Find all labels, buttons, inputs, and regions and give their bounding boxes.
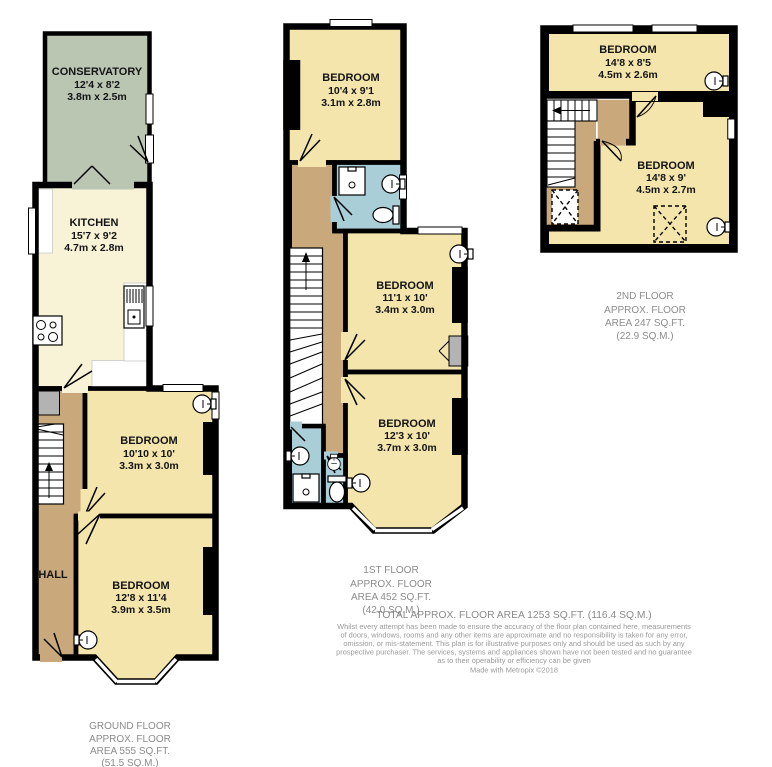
room-dims-m: 3.3m x 3.0m bbox=[119, 460, 179, 472]
room-dims-ft: 14'8 x 8'5 bbox=[605, 57, 651, 69]
toilet-icon bbox=[373, 206, 399, 224]
room-label: BEDROOM bbox=[378, 418, 435, 430]
stairs-icon bbox=[36, 424, 64, 504]
shower-icon bbox=[293, 474, 319, 502]
toilet-icon bbox=[328, 476, 346, 502]
window bbox=[330, 20, 372, 27]
svg-text:AREA 452 SQ.FT.: AREA 452 SQ.FT. bbox=[351, 592, 431, 603]
room-label: KITCHEN bbox=[70, 217, 119, 229]
room-dims-m: 4.5m x 2.7m bbox=[636, 184, 696, 196]
window bbox=[652, 25, 697, 32]
svg-text:APPROX. FLOOR: APPROX. FLOOR bbox=[604, 305, 686, 316]
window bbox=[418, 227, 462, 234]
svg-text:(51.5 SQ.M.): (51.5 SQ.M.) bbox=[101, 758, 158, 767]
svg-text:(22.9 SQ.M.): (22.9 SQ.M.) bbox=[616, 331, 673, 342]
stove-icon bbox=[33, 316, 62, 345]
room-dims-ft: 14'8 x 9' bbox=[646, 172, 686, 184]
room-conservatory bbox=[45, 34, 150, 186]
room-dims-m: 4.7m x 2.8m bbox=[64, 242, 124, 254]
svg-text:2ND FLOOR: 2ND FLOOR bbox=[616, 291, 673, 302]
room-dims-m: 3.4m x 3.0m bbox=[375, 304, 435, 316]
room-label: BEDROOM bbox=[599, 44, 656, 56]
window bbox=[728, 119, 735, 139]
room-dims-ft: 12'8 x 11'4 bbox=[115, 592, 166, 604]
first-floor-plan: BEDROOM 10'4 x 9'1 3.1m x 2.8m BEDROOM 1… bbox=[283, 20, 473, 617]
door-opening bbox=[72, 181, 134, 190]
ground-floor-plan: CONSERVATORY 12'4 x 8'2 3.8m x 2.5m KITC… bbox=[29, 34, 220, 767]
svg-text:AREA 555 SQ.FT.: AREA 555 SQ.FT. bbox=[90, 746, 170, 757]
svg-text:APPROX. FLOOR: APPROX. FLOOR bbox=[350, 579, 432, 590]
floorplan-canvas: CONSERVATORY 12'4 x 8'2 3.8m x 2.5m KITC… bbox=[0, 0, 772, 767]
room-label: BEDROOM bbox=[376, 280, 433, 292]
ground-floor-caption: GROUND FLOOR APPROX. FLOOR AREA 555 SQ.F… bbox=[89, 721, 171, 767]
credit-text: Made with Metropix ©2018 bbox=[470, 666, 558, 675]
room-label: BEDROOM bbox=[322, 72, 379, 84]
disclaimer-line: as to their operability or efficiency ca… bbox=[437, 656, 591, 665]
window bbox=[573, 25, 633, 32]
svg-text:APPROX. FLOOR: APPROX. FLOOR bbox=[89, 734, 171, 745]
second-floor-caption: 2ND FLOOR APPROX. FLOOR AREA 247 SQ.FT. … bbox=[604, 291, 686, 342]
room-dims-ft: 10'4 x 9'1 bbox=[328, 85, 374, 97]
room-dims-ft: 11'1 x 10' bbox=[382, 292, 427, 304]
room-dims-ft: 10'10 x 10' bbox=[123, 448, 175, 460]
kitchen-counter bbox=[92, 361, 150, 387]
first-floor-caption: 1ST FLOOR APPROX. FLOOR AREA 452 SQ.FT. … bbox=[350, 565, 432, 616]
sink-icon bbox=[450, 245, 473, 263]
window bbox=[146, 94, 153, 124]
room-label: BEDROOM bbox=[112, 580, 169, 592]
storage-block bbox=[36, 391, 60, 415]
door-opening bbox=[632, 92, 658, 101]
svg-text:1ST FLOOR: 1ST FLOOR bbox=[363, 565, 418, 576]
second-floor-plan: BEDROOM 14'8 x 8'5 4.5m x 2.6m BEDROOM 1… bbox=[544, 25, 735, 342]
room-dims-m: 4.5m x 2.6m bbox=[598, 69, 658, 81]
floorplan-page: CONSERVATORY 12'4 x 8'2 3.8m x 2.5m KITC… bbox=[0, 0, 772, 767]
svg-text:GROUND FLOOR: GROUND FLOOR bbox=[89, 721, 171, 732]
svg-text:AREA 247 SQ.FT.: AREA 247 SQ.FT. bbox=[605, 318, 685, 329]
window bbox=[29, 208, 36, 254]
room-label: HALL bbox=[38, 569, 68, 581]
window bbox=[146, 286, 153, 326]
room-dims-ft: 12'3 x 10' bbox=[384, 430, 430, 442]
shower-icon bbox=[339, 167, 365, 195]
room-dims-m: 3.9m x 3.5m bbox=[111, 604, 171, 616]
stairs-icon bbox=[290, 248, 323, 426]
room-dims-ft: 15'7 x 9'2 bbox=[71, 230, 117, 242]
room-dims-ft: 12'4 x 8'2 bbox=[74, 79, 120, 91]
total-area-text: TOTAL APPROX. FLOOR AREA 1253 SQ.FT. (11… bbox=[376, 610, 651, 621]
room-dims-m: 3.8m x 2.5m bbox=[67, 91, 127, 103]
appliance-icon bbox=[124, 286, 144, 328]
room-label: BEDROOM bbox=[120, 435, 177, 447]
window bbox=[163, 385, 203, 392]
room-dims-m: 3.1m x 2.8m bbox=[321, 97, 381, 109]
room-label: BEDROOM bbox=[637, 160, 694, 172]
footer: TOTAL APPROX. FLOOR AREA 1253 SQ.FT. (11… bbox=[336, 610, 692, 675]
room-dims-m: 3.7m x 3.0m bbox=[377, 442, 437, 454]
room-label: CONSERVATORY bbox=[52, 66, 143, 78]
